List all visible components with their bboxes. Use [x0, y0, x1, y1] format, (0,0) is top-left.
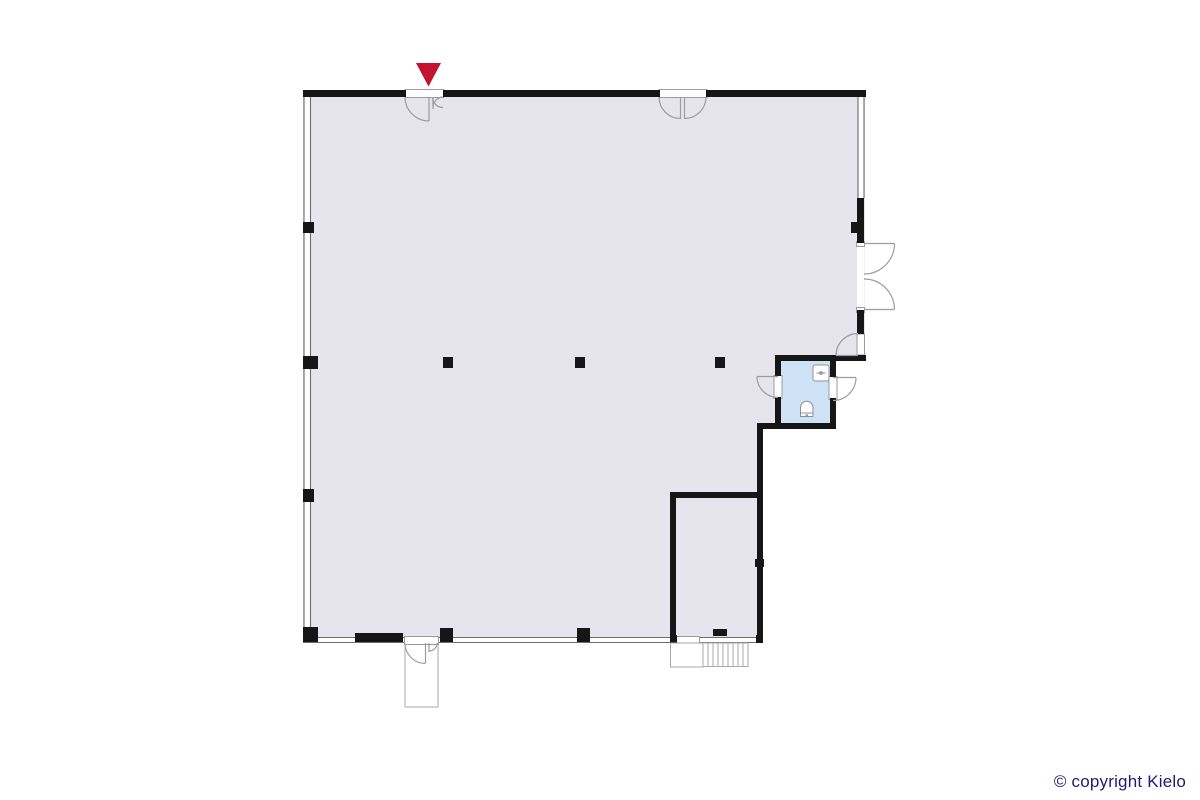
floor-plan-canvas — [0, 0, 1200, 800]
toilet-icon — [801, 401, 813, 416]
entrance-marker-icon — [416, 63, 441, 87]
sink-icon — [813, 365, 829, 381]
floor-plan — [0, 0, 1200, 800]
stairs-icon — [671, 643, 749, 667]
copyright-text: © copyright Kielo — [1054, 772, 1186, 792]
entrance-vestibule — [405, 643, 438, 707]
double-door-right-exterior — [864, 244, 895, 310]
double-door-bottom — [405, 643, 437, 664]
